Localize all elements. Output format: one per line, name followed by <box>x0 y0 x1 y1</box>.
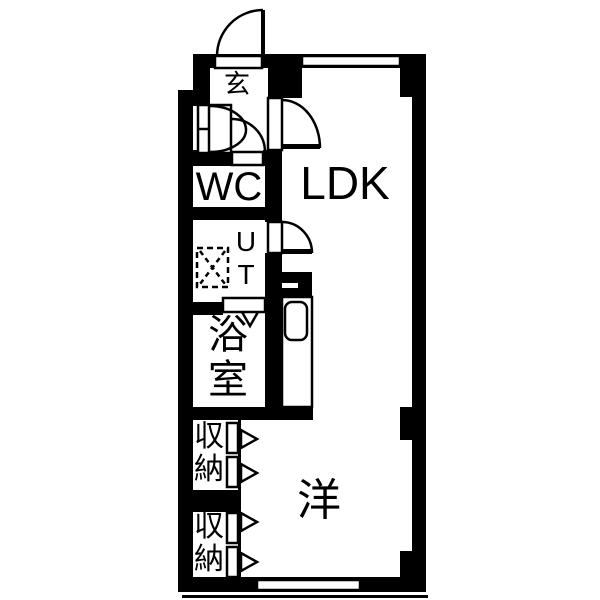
bathroom-folding-door-leaf <box>223 298 265 312</box>
floorplan-canvas: 玄 WC LDK U T 浴 室 収 納 収 納 洋 <box>0 0 600 600</box>
wc-door-leaf <box>232 152 263 165</box>
closet-door-triangles <box>241 430 257 571</box>
entrance-door-arc <box>217 10 265 56</box>
ldk-door-leaf <box>268 98 282 150</box>
western-room-label: 洋 <box>296 477 342 525</box>
window-top <box>302 56 400 66</box>
wc-door-arc <box>232 119 265 152</box>
closet1-label: 収 納 <box>193 420 225 486</box>
window-bottom <box>257 580 360 590</box>
stove-grill-mark <box>282 283 298 288</box>
closet2-label: 収 納 <box>193 510 225 576</box>
washing-machine-pan <box>197 248 228 287</box>
ldk-door-arc <box>282 100 320 149</box>
wc-label: WC <box>192 165 266 209</box>
ldk-label: LDK <box>293 158 397 209</box>
ut-door-leaf <box>268 222 282 253</box>
ut-door-arc <box>282 222 312 254</box>
bathroom-label: 浴 室 <box>206 313 250 403</box>
entrance-label: 玄 <box>222 70 252 99</box>
kitchen-sink <box>285 302 307 340</box>
entrance-door-leaf <box>215 56 262 68</box>
utility-label: U T <box>232 225 260 291</box>
